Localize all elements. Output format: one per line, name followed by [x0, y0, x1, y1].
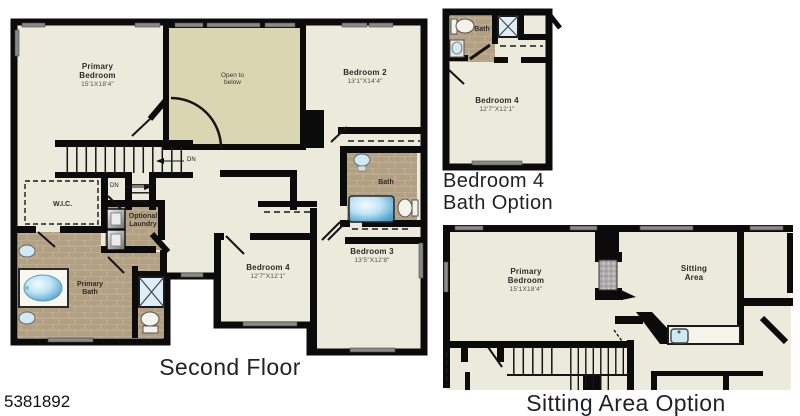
- listing-id: 5381892: [4, 392, 70, 412]
- toilet-icon: [141, 312, 159, 326]
- sink-icon: [19, 245, 35, 257]
- window: [472, 161, 522, 165]
- option-primary-bedroom-label: Primary Bedroom 15'1X18'4": [470, 267, 582, 294]
- bathtub-icon: [349, 196, 394, 222]
- bedroom-4-label: Bedroom 4 12'7"X12'1": [218, 263, 318, 281]
- second-floor-caption: Second Floor: [130, 354, 330, 381]
- bath-option-plan: [446, 12, 560, 167]
- sitting-option-plan: [443, 225, 793, 390]
- floorplan-page: Primary Bedroom 15'1X18'4" Open to below…: [0, 0, 800, 416]
- sink-icon: [354, 154, 370, 166]
- bedroom-3-label: Bedroom 3 13'5"X12'8": [322, 247, 422, 265]
- hall-bath-label: Bath: [366, 179, 406, 187]
- fireplace-chase: [599, 260, 617, 290]
- stairs-down-label: DN: [110, 183, 119, 189]
- sink-icon: [19, 312, 35, 324]
- bedroom-2-label: Bedroom 2 13'1"X14'4": [320, 68, 410, 86]
- sitting-area-label: Sitting Area: [660, 264, 728, 282]
- primary-bedroom-label: Primary Bedroom 15'1X18'4": [40, 62, 155, 89]
- primary-bath-label: Primary Bath: [60, 281, 120, 297]
- sink-icon: [452, 42, 462, 54]
- open-to-below-label: Open to below: [195, 72, 270, 87]
- sitting-option-caption: Sitting Area Option: [450, 390, 800, 416]
- toilet-icon: [398, 199, 412, 217]
- bath-option-caption: Bedroom 4 Bath Option: [443, 170, 583, 214]
- option-bath-label: Bath: [464, 26, 500, 34]
- wic-label: W.I.C.: [35, 201, 90, 209]
- option-bedroom-4-label: Bedroom 4 12'7"X12'1": [452, 96, 542, 114]
- stairs-down-label: DN: [187, 157, 196, 163]
- sitting-counter: [668, 326, 740, 344]
- optional-laundry-label: Optional Laundry: [114, 213, 172, 229]
